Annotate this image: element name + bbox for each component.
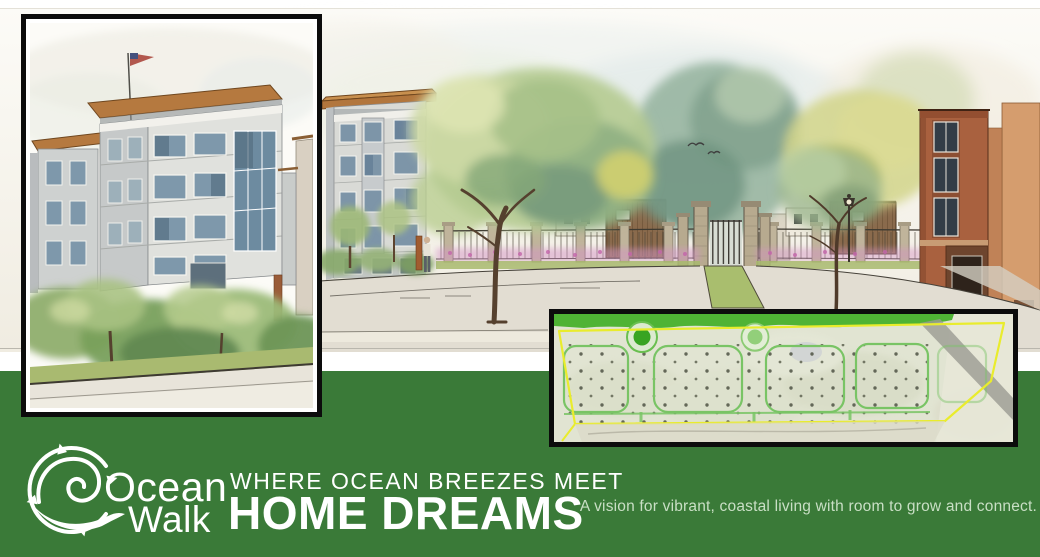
sidewalk xyxy=(320,332,550,342)
site-plan-art xyxy=(554,314,1013,442)
bollard xyxy=(416,236,422,270)
building-closeup-art xyxy=(30,23,313,408)
poster: Ocean Walk WHERE OCEAN BREEZES MEET HOME… xyxy=(0,0,1040,557)
tagline: A vision for vibrant, coastal living wit… xyxy=(580,498,1037,517)
wave-curl xyxy=(38,459,99,502)
headline: HOME DREAMS xyxy=(228,490,584,536)
building-closeup-inset xyxy=(21,14,322,417)
site-plan-inset xyxy=(549,309,1018,447)
brand-name-walk: Walk xyxy=(128,501,211,538)
